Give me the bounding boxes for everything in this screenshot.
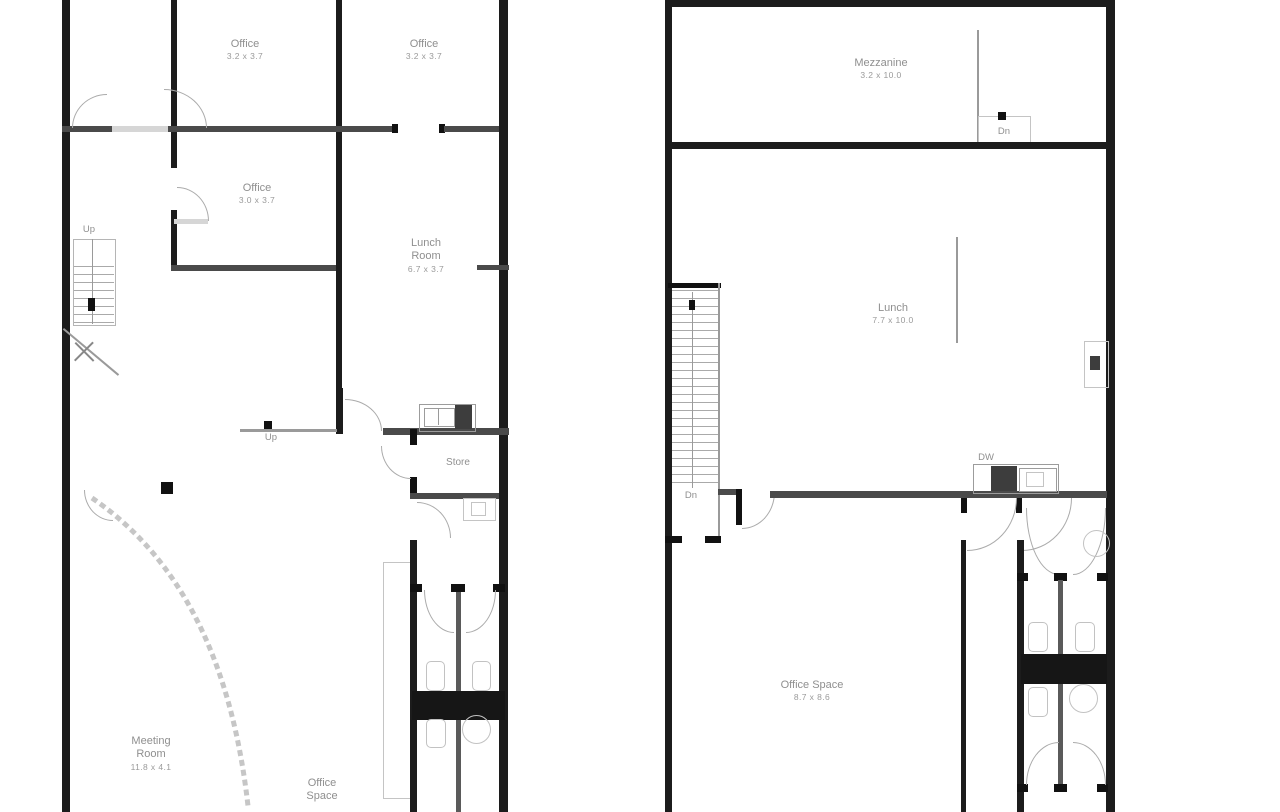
- glass-partition: [383, 562, 411, 799]
- room-name: Store: [446, 457, 470, 469]
- stair-arrow: [998, 112, 1006, 120]
- door-jamb: [665, 536, 682, 543]
- dishwasher-icon: [991, 466, 1017, 491]
- desk-block: [412, 691, 505, 720]
- stair-treads: [74, 266, 114, 324]
- door-jamb: [1017, 784, 1028, 792]
- stairs-dn-label: Dn: [685, 490, 697, 501]
- wall-mezzanine-south: [665, 142, 1113, 149]
- desk-partition: [1058, 580, 1063, 655]
- chair-icon: [1083, 530, 1110, 557]
- stairs-up-label: Up: [83, 224, 95, 235]
- stove-icon: [455, 405, 472, 429]
- stair-opening-rail: [240, 429, 337, 432]
- chair-icon: [426, 661, 445, 691]
- room-label-meeting-room: Meeting Room 11.8 x 4.1: [119, 735, 183, 772]
- chair-icon: [472, 661, 491, 691]
- door-leaf: [112, 126, 169, 132]
- door-swing-icon: [1073, 742, 1106, 785]
- door-swing-icon: [424, 590, 454, 633]
- wall-stub-east: [477, 265, 509, 270]
- room-label-office-2: Office 3.2 x 3.7: [406, 38, 442, 62]
- stair-break-line: [63, 328, 119, 376]
- door-swing-icon: [72, 94, 107, 128]
- room-label-lunch: Lunch 7.7 x 10.0: [872, 302, 913, 326]
- chair-icon: [1028, 622, 1048, 652]
- sink-divider: [438, 408, 439, 425]
- room-name: Lunch Room: [401, 237, 451, 264]
- sink-basin: [1026, 472, 1044, 487]
- room-dims: 6.7 x 3.7: [401, 264, 451, 274]
- column-marker: [161, 482, 173, 494]
- door-swing-icon: [177, 187, 209, 221]
- door-swing-icon: [417, 502, 451, 538]
- room-label-office-space-left: Office Space: [295, 777, 349, 804]
- room-name: Meeting Room: [119, 735, 183, 762]
- room-name: Office Space: [295, 777, 349, 804]
- room-label-mezzanine: Mezzanine 3.2 x 10.0: [854, 57, 907, 81]
- sink-icon: [424, 408, 455, 427]
- room-dims: 3.2 x 3.7: [227, 51, 263, 61]
- room-label-store: Store: [446, 457, 470, 469]
- wall-right-outer-north: [665, 0, 1113, 7]
- door-swing-icon: [1026, 508, 1059, 575]
- desk-partition: [456, 720, 461, 812]
- room-dims: 11.8 x 4.1: [119, 762, 183, 772]
- room-label-lunch-room: Lunch Room 6.7 x 3.7: [401, 237, 451, 274]
- door-jamb: [1097, 784, 1108, 792]
- wall-left-outer-west: [62, 0, 70, 812]
- door-swing-icon: [164, 89, 207, 128]
- partition-cap: [1054, 784, 1067, 792]
- door-jamb: [1017, 573, 1028, 581]
- wall-office3-south: [171, 265, 342, 271]
- door-jamb: [392, 124, 398, 133]
- room-dims: 8.7 x 8.6: [781, 692, 844, 702]
- wall-lunchroom-west-lower: [336, 388, 343, 434]
- basin-fixture-inner: [471, 502, 486, 516]
- door-swing-icon: [466, 590, 496, 633]
- floorplan-canvas: Office 3.2 x 3.7 Office 3.2 x 3.7 Office…: [0, 0, 1280, 812]
- door-swing-icon: [967, 498, 1017, 551]
- room-label-office-space-right: Office Space 8.7 x 8.6: [781, 679, 844, 703]
- wall-office-divider-2: [336, 0, 342, 128]
- wall-offices-south-3: [444, 126, 499, 132]
- room-dims: 7.7 x 10.0: [872, 315, 913, 325]
- chair-icon: [426, 719, 446, 748]
- wall-office3-west-1: [171, 132, 177, 168]
- door-jamb: [705, 536, 721, 543]
- fridge-mark: [1090, 356, 1100, 370]
- room-dims: 3.0 x 3.7: [239, 195, 275, 205]
- desk-block: [1021, 654, 1107, 684]
- door-swing-icon: [1026, 742, 1059, 785]
- room-name: Office Space: [781, 679, 844, 692]
- stair-side-line: [718, 283, 720, 541]
- stair-direction-line: [692, 292, 693, 488]
- stair-direction-line: [92, 239, 93, 324]
- stair-arrow: [689, 300, 695, 310]
- chair-icon: [1075, 622, 1095, 652]
- room-dims: 3.2 x 3.7: [406, 51, 442, 61]
- door-swing-icon: [345, 399, 382, 431]
- door-jamb: [410, 584, 422, 592]
- wall-store-west-1: [410, 429, 417, 445]
- room-name: Office: [239, 182, 275, 195]
- wall-right-outer-west: [665, 0, 672, 812]
- column-marker: [264, 421, 272, 429]
- door-jamb: [1097, 573, 1108, 581]
- lunch-edge-line: [956, 237, 958, 343]
- wall-cluster-west: [410, 540, 417, 812]
- stair-arrow: [88, 298, 95, 311]
- room-dims: 3.2 x 10.0: [854, 70, 907, 80]
- stair-treads: [672, 290, 718, 488]
- room-name: Office: [406, 38, 442, 51]
- room-name: Mezzanine: [854, 57, 907, 70]
- wall-partition-mid: [961, 540, 966, 812]
- dishwasher-label: DW: [978, 452, 994, 463]
- room-name: Office: [227, 38, 263, 51]
- chair-icon: [462, 715, 491, 744]
- mezzanine-dn-label: Dn: [998, 126, 1010, 137]
- desk-partition: [456, 592, 461, 692]
- room-label-office-1: Office 3.2 x 3.7: [227, 38, 263, 62]
- wall-right-outer-east: [1106, 0, 1115, 812]
- chair-icon: [1069, 684, 1098, 713]
- wall-lunchroom-west: [336, 132, 342, 390]
- chair-icon: [1028, 687, 1048, 717]
- room-name: Lunch: [872, 302, 913, 315]
- door-swing-icon: [381, 446, 411, 479]
- mid-up-label: Up: [265, 432, 277, 443]
- stair-top-wall: [668, 283, 721, 288]
- room-label-office-3: Office 3.0 x 3.7: [239, 182, 275, 206]
